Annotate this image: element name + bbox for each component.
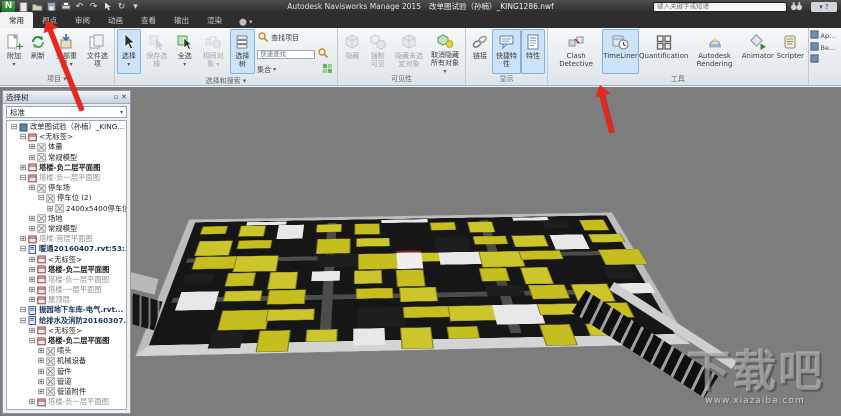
tree-item-label: 管道附件 <box>57 387 86 397</box>
find-magnifier-icon <box>257 31 269 45</box>
tree-mode-value: 标准 <box>10 107 25 118</box>
redo-icon[interactable]: ↷ <box>88 2 99 12</box>
select-tool-icon[interactable] <box>102 2 113 12</box>
tree-toggle-icon[interactable]: ⊞ <box>37 378 45 386</box>
model-block <box>598 249 649 265</box>
tree-toggle-icon[interactable]: ⊞ <box>19 164 27 172</box>
refresh-button[interactable]: 刷新 <box>26 29 50 74</box>
tree-item[interactable]: ⊟振园地下车库-电气.rvt... <box>7 305 126 315</box>
print-icon[interactable] <box>60 2 71 12</box>
tree-mode-dropdown[interactable]: 标准 ▾ <box>6 106 127 118</box>
ribbon-tab-strip: 常用视点审阅动画查看输出渲染 ⬤ ▾ <box>0 13 841 28</box>
tree-item-label: <无标签> <box>48 255 82 265</box>
tab-home[interactable]: 常用 <box>0 12 33 28</box>
model-block <box>518 250 563 260</box>
ribbon-group-label-tools[interactable]: 工具 <box>550 74 805 86</box>
quick-find-row <box>257 47 333 61</box>
quick-access-toolbar: N ↶ ↷ ↻ ▾ <box>0 1 141 12</box>
model-block <box>255 330 290 352</box>
model-block <box>358 307 407 328</box>
tree-item[interactable]: ⊞管件 <box>7 367 126 377</box>
tree-item-label: 塔楼-负二层平面图 <box>39 163 100 173</box>
tree-toggle-icon[interactable]: ⊞ <box>28 154 36 162</box>
ribbon-groups: +附加 ▾刷新全部重置 ▾文件选项项目 ▾选择 ▾保存选择全选 ▾相同对象 ▾选… <box>0 28 809 85</box>
append-button[interactable]: +附加 ▾ <box>2 29 26 74</box>
tree-geom-icon <box>46 387 55 396</box>
file-options-button[interactable]: 文件选项 <box>83 29 112 74</box>
require-button: 强制可见 <box>364 29 391 74</box>
tree-file-icon <box>28 306 37 315</box>
model-block <box>511 235 549 247</box>
tree-toggle-icon[interactable]: ⊞ <box>28 276 36 284</box>
quantification-icon <box>655 32 673 51</box>
scripter-icon <box>781 32 799 51</box>
ribbon-tabs: 常用视点审阅动画查看输出渲染 <box>0 12 231 28</box>
tree-item[interactable]: ⊞塔楼-首层平面图 <box>7 234 126 244</box>
tree-toggle-icon[interactable]: ⊞ <box>28 225 36 233</box>
tree-item[interactable]: ⊟停车位 (2) <box>7 193 126 203</box>
tree-item[interactable]: ⊞机械设备 <box>7 356 126 366</box>
refresh-icon <box>29 32 47 51</box>
tree-item[interactable]: ⊞塔楼-负二层平面图 <box>7 265 126 275</box>
sets-dropdown[interactable]: 集合▾ <box>257 63 333 76</box>
tree-file-icon <box>28 245 37 254</box>
tree-item-label: 塔楼-首层平面图 <box>39 234 93 244</box>
find-items-button[interactable]: 查找项目 <box>257 31 333 45</box>
model-block <box>194 241 233 257</box>
model-block <box>311 271 340 281</box>
model-block <box>217 310 270 331</box>
tree-item[interactable]: ⊞管道 <box>7 377 126 387</box>
tree-item-label: 场地 <box>48 214 63 224</box>
tree-geom-icon <box>37 224 46 233</box>
model-block <box>266 309 315 321</box>
tree-toggle-icon[interactable]: ⊞ <box>28 215 36 223</box>
autodesk-rendering-icon <box>706 32 724 51</box>
chevron-down-icon: ▾ <box>273 66 276 73</box>
tree-toggle-icon[interactable]: ⊟ <box>19 133 27 141</box>
tree-sheet-icon <box>37 275 46 284</box>
tree-item[interactable]: ⊟塔楼-负一层平面图 <box>7 173 126 183</box>
tree-item-label: 塔楼-负二层平面图 <box>48 336 109 346</box>
tree-geom-icon <box>37 214 46 223</box>
tree-toggle-icon[interactable]: ⊟ <box>19 306 27 314</box>
app-title: Autodesk Navisworks Manage 2015 <box>287 2 421 11</box>
tree-item-label: <无标签> <box>39 132 73 142</box>
find-items-panel: 查找项目集合▾ <box>255 29 335 76</box>
file-options-icon <box>88 32 106 51</box>
model-block <box>396 269 426 286</box>
tree-item-label: 塔楼-负一层平面图 <box>48 275 109 285</box>
navisworks-window: N ↶ ↷ ↻ ▾ Autodesk Navisworks Manage 201… <box>0 0 841 416</box>
model-block <box>353 328 385 345</box>
tree-item-label: 塔楼-负二层平面图 <box>48 265 109 275</box>
quick-find-input[interactable] <box>257 50 315 59</box>
tree-toggle-icon[interactable]: ⊞ <box>28 256 36 264</box>
model-core <box>396 250 423 269</box>
model-wall-segment <box>381 219 428 223</box>
tree-geom-icon <box>55 204 64 213</box>
model-block <box>276 225 304 239</box>
model-block <box>539 324 578 346</box>
model-block <box>354 270 383 284</box>
svg-text:+: + <box>16 41 24 51</box>
tree-item-label: 体量 <box>48 142 63 152</box>
ribbon-group-visibility: 隐藏强制可见隐藏未选定对象取消隐藏所有对象 ▾可见性 <box>338 28 466 85</box>
tree-toggle-icon[interactable]: ⊟ <box>19 317 27 325</box>
quick-properties-icon <box>498 32 516 51</box>
model-block <box>222 290 262 301</box>
model-block <box>191 256 238 269</box>
clash-detective-icon <box>567 32 585 51</box>
tree-sheet-icon <box>37 265 46 274</box>
tree-geom-icon <box>37 143 46 152</box>
tree-geom-icon <box>46 377 55 386</box>
tree-sheet-icon <box>28 163 37 172</box>
select-same-button: 相同对象 ▾ <box>197 29 230 74</box>
appearance-profiler-button[interactable]: Ap... <box>810 30 841 41</box>
model-block <box>520 267 554 284</box>
tree-sheet-icon <box>28 133 37 142</box>
tree-item-label: 塔楼-负一层平面图 <box>39 173 100 183</box>
refresh-tool-icon[interactable]: ↻ <box>116 2 127 12</box>
main-area: 选择树 ▫ ✕ 标准 ▾ ⊟改单图试验（孙楠）_KING...⊟<无标签>⊞体量… <box>0 86 841 416</box>
animator-icon <box>749 32 767 51</box>
tree-item-label: 改单图试验（孙楠）_KING... <box>30 122 124 132</box>
model-block <box>579 220 610 231</box>
tab-output[interactable]: 输出 <box>165 12 198 28</box>
tree-item-label: 常规模型 <box>48 224 77 234</box>
binoculars-icon[interactable] <box>790 1 803 13</box>
tree-sheet-icon <box>28 174 37 183</box>
tree-item-label: 管道 <box>57 377 72 387</box>
hide-button: 隐藏 <box>340 29 364 74</box>
tree-item[interactable]: ⊞<无标签> <box>7 254 126 264</box>
tree-item[interactable]: ⊞场地 <box>7 214 126 224</box>
document-title: 改单图试验（孙楠）_KING1286.nwf <box>429 2 554 11</box>
tab-view[interactable]: 查看 <box>132 12 165 28</box>
model-block <box>588 234 626 243</box>
tree-item[interactable]: ⊟<无标签> <box>7 132 126 142</box>
tree-item-label: 喷头 <box>57 346 72 356</box>
model-block <box>550 234 590 249</box>
ribbon-options-icon[interactable]: ⬤ ▾ <box>239 18 253 26</box>
tree-item[interactable]: ⊞2400x5400停车位 <box>7 204 126 214</box>
ribbon-group-select-search: 选择 ▾保存选择全选 ▾相同对象 ▾选择树查找项目集合▾选择和搜索 ▾ <box>115 28 338 85</box>
open-icon[interactable] <box>32 2 43 12</box>
model-block <box>438 252 483 265</box>
panel-close-icon[interactable]: ✕ <box>121 93 127 101</box>
tree-toggle-icon[interactable]: ⊞ <box>28 286 36 294</box>
model-block <box>354 223 380 234</box>
unhide-all-icon <box>436 32 454 50</box>
model-block <box>356 288 394 299</box>
model-block <box>447 326 481 339</box>
quantification-button[interactable]: Quantification <box>639 29 689 74</box>
model-block <box>602 265 637 279</box>
model-block <box>479 268 511 282</box>
hide-unselected-icon <box>400 32 418 51</box>
datatools-button[interactable] <box>810 54 841 65</box>
quick-find-go-icon[interactable] <box>317 47 329 61</box>
model-block <box>316 238 351 253</box>
tree-item[interactable]: ⊟塔楼-负二层平面图 <box>7 336 126 346</box>
model-block <box>175 291 219 310</box>
tree-item[interactable]: ⊞塔楼-一层平面图 <box>7 285 126 295</box>
tree-toggle-icon[interactable]: ⊞ <box>46 205 54 213</box>
selection-tree: ⊟改单图试验（孙楠）_KING...⊟<无标签>⊞体量⊞常规模型⊞塔楼-负二层平… <box>6 120 127 410</box>
tree-item-label: 屋顶层 <box>48 295 70 305</box>
properties-icon <box>524 32 542 51</box>
ribbon: +附加 ▾刷新全部重置 ▾文件选项项目 ▾选择 ▾保存选择全选 ▾相同对象 ▾选… <box>0 28 841 86</box>
tree-toggle-icon[interactable]: ⊞ <box>28 184 36 192</box>
ribbon-mini-column: Ap...Be... <box>809 28 841 85</box>
tree-item[interactable]: ⊟给排水及消防20160307... <box>7 316 126 326</box>
tree-item[interactable]: ⊞塔楼-负一层平面图 <box>7 397 126 407</box>
properties-button[interactable]: 特性 <box>521 29 545 74</box>
tree-toggle-icon[interactable]: ⊞ <box>37 347 45 355</box>
select-all-icon <box>176 32 194 51</box>
model-block <box>485 285 525 296</box>
tree-toggle-icon[interactable]: ⊞ <box>37 388 45 396</box>
tree-item-label: 2400x5400停车位 <box>66 204 127 214</box>
ribbon-group-label-visibility[interactable]: 可见性 <box>340 74 463 86</box>
model-block <box>399 287 438 302</box>
model-block <box>200 226 228 234</box>
tree-item[interactable]: ⊞喷头 <box>7 346 126 356</box>
model-block <box>316 224 342 232</box>
select-same-icon <box>204 32 222 51</box>
tree-item-label: 机械设备 <box>57 356 86 366</box>
tree-item[interactable]: ⊞停车场 <box>7 183 126 193</box>
tree-sheet-icon <box>37 326 46 335</box>
select-button[interactable]: 选择 ▾ <box>117 29 141 74</box>
tree-item-label: 振园地下车库-电气.rvt... <box>39 305 123 315</box>
model-block <box>317 254 360 267</box>
tree-item[interactable]: ⊞管道附件 <box>7 387 126 397</box>
tree-toggle-icon[interactable]: ⊞ <box>19 235 27 243</box>
tree-item[interactable]: ⊞常规模型 <box>7 224 126 234</box>
tree-item[interactable]: ⊞塔楼-负二层平面图 <box>7 163 126 173</box>
selection-tree-icon <box>233 32 251 51</box>
autodesk-rendering-button[interactable]: Autodesk Rendering <box>689 29 741 74</box>
qat-dropdown-icon[interactable]: ▾ <box>130 2 141 12</box>
tree-root-icon <box>19 123 28 132</box>
tree-item-label: 管件 <box>57 367 72 377</box>
selection-tree-panel: 选择树 ▫ ✕ 标准 ▾ ⊟改单图试验（孙楠）_KING...⊟<无标签>⊞体量… <box>2 90 131 414</box>
tree-toggle-icon[interactable]: ⊞ <box>37 368 45 376</box>
tree-toggle-icon[interactable]: ⊞ <box>28 398 36 406</box>
select-all-button[interactable]: 全选 ▾ <box>173 29 197 74</box>
tree-item-label: 给排水及消防20160307... <box>39 316 127 326</box>
app-menu-button[interactable]: N <box>2 1 15 12</box>
tree-toggle-icon[interactable]: ⊞ <box>28 327 36 335</box>
save-selection-icon <box>148 32 166 51</box>
tree-item-label: <无标签> <box>48 326 82 336</box>
tree-sheet-icon <box>37 286 46 295</box>
infocenter-buttons[interactable]: ▾ ? <box>811 2 837 12</box>
panel-title-bar[interactable]: 选择树 ▫ ✕ <box>3 91 130 104</box>
undo-icon[interactable]: ↶ <box>74 2 85 12</box>
tree-geom-icon <box>37 153 46 162</box>
datatools-icon <box>810 54 819 65</box>
tree-item[interactable]: ⊞塔楼-负一层平面图 <box>7 275 126 285</box>
tree-item-label: 常规模型 <box>48 153 77 163</box>
batch-utility-button[interactable]: Be... <box>810 42 841 53</box>
model-block <box>403 306 452 318</box>
model-block <box>434 236 471 251</box>
model-block <box>208 331 244 349</box>
ribbon-group-label-display[interactable]: 显示 <box>468 74 545 86</box>
model-block <box>542 220 570 228</box>
model-block <box>473 236 509 245</box>
model-block <box>356 238 390 247</box>
panel-pin-icon[interactable]: ▫ <box>113 93 118 101</box>
tree-item[interactable]: ⊞体量 <box>7 142 126 152</box>
unhide-all-button[interactable]: 取消隐藏所有对象 ▾ <box>427 29 463 74</box>
tree-file-icon <box>28 316 37 325</box>
tree-geom-icon <box>46 367 55 376</box>
tree-toggle-icon[interactable]: ⊟ <box>28 337 36 345</box>
model-block <box>528 284 570 299</box>
tree-item-label: 停车场 <box>48 183 70 193</box>
tree-sheet-icon <box>28 235 37 244</box>
model-block <box>467 221 495 232</box>
batch-utility-icon <box>810 42 819 53</box>
tree-toggle-icon[interactable]: ⊟ <box>19 174 27 182</box>
select-icon <box>120 32 138 51</box>
links-icon <box>471 32 489 51</box>
new-icon[interactable] <box>18 2 29 12</box>
selection-tree-button[interactable]: 选择树 <box>230 29 255 74</box>
tree-item-label: 暖通20160407.rvt:53:... <box>39 244 127 254</box>
chevron-down-icon: ▾ <box>120 109 123 116</box>
tree-toggle-icon[interactable]: ⊟ <box>19 245 27 253</box>
model-block <box>400 327 434 349</box>
tree-toggle-icon[interactable]: ⊟ <box>37 194 45 202</box>
model-block <box>430 222 457 230</box>
model-block <box>182 273 214 283</box>
scripter-button[interactable]: Scripter <box>775 29 805 74</box>
tab-render[interactable]: 渲染 <box>198 12 231 28</box>
sets-grid-icon[interactable] <box>322 63 333 76</box>
model-block <box>236 240 272 249</box>
tree-geom-icon <box>46 347 55 356</box>
model-wall-segment <box>512 217 549 221</box>
model-block <box>447 305 498 321</box>
append-icon: + <box>5 32 23 51</box>
model-block <box>358 253 402 270</box>
tree-geom-icon <box>46 357 55 366</box>
tree-sheet-icon <box>37 398 46 407</box>
search-input[interactable] <box>653 2 787 12</box>
model-block <box>266 290 306 305</box>
tree-item[interactable]: ⊟暖通20160407.rvt:53:... <box>7 244 126 254</box>
tab-animation[interactable]: 动画 <box>99 12 132 28</box>
ribbon-group-tools: Clash DetectiveTimeLinerQuantificationAu… <box>548 28 808 85</box>
model-block <box>305 329 337 342</box>
tree-geom-icon <box>37 184 46 193</box>
tree-item[interactable]: ⊞常规模型 <box>7 153 126 163</box>
animator-button[interactable]: Animator <box>741 29 776 74</box>
save-selection-button: 保存选择 <box>141 29 173 74</box>
clash-detective-button[interactable]: Clash Detective <box>550 29 602 74</box>
model-block <box>232 255 279 272</box>
panel-title: 选择树 <box>6 92 29 103</box>
tree-item-label: 塔楼-一层平面图 <box>48 285 102 295</box>
ribbon-group-label-project[interactable]: 项目 ▾ <box>2 74 112 86</box>
hide-icon <box>343 32 361 51</box>
tree-sheet-icon <box>37 296 46 305</box>
tree-sheet-icon <box>37 337 46 346</box>
tree-toggle-icon[interactable]: ⊟ <box>10 123 18 131</box>
links-button[interactable]: 链接 <box>468 29 492 74</box>
ribbon-group-display: 链接快捷特性特性显示 <box>466 28 548 85</box>
tree-item-label: 塔楼-负一层平面图 <box>48 397 109 407</box>
tab-review[interactable]: 审阅 <box>66 12 99 28</box>
tree-toggle-icon[interactable]: ⊞ <box>28 266 36 274</box>
tree-item[interactable]: ⊟改单图试验（孙楠）_KING... <box>7 122 126 132</box>
tree-item-label: 停车位 (2) <box>57 193 92 203</box>
infocenter-search <box>653 2 803 12</box>
timeliner-button[interactable]: TimeLiner <box>602 29 639 74</box>
tree-toggle-icon[interactable]: ⊞ <box>28 296 36 304</box>
ribbon-group-label-select-search[interactable]: 选择和搜索 ▾ <box>117 76 335 86</box>
tree-item[interactable]: ⊞屋顶层 <box>7 295 126 305</box>
hide-unselected-button: 隐藏未选定对象 <box>391 29 427 74</box>
tree-sheet-icon <box>37 255 46 264</box>
model-block <box>267 272 298 290</box>
model-block <box>238 225 266 236</box>
timeliner-icon <box>611 32 629 51</box>
tree-toggle-icon[interactable]: ⊞ <box>37 357 45 365</box>
tree-item[interactable]: ⊞<无标签> <box>7 326 126 336</box>
tree-geom-icon <box>46 194 55 203</box>
require-icon <box>369 32 387 51</box>
tree-toggle-icon[interactable]: ⊞ <box>28 143 36 151</box>
appearance-profiler-icon <box>810 30 819 41</box>
model-block <box>224 273 256 287</box>
quick-properties-button[interactable]: 快捷特性 <box>492 29 521 74</box>
